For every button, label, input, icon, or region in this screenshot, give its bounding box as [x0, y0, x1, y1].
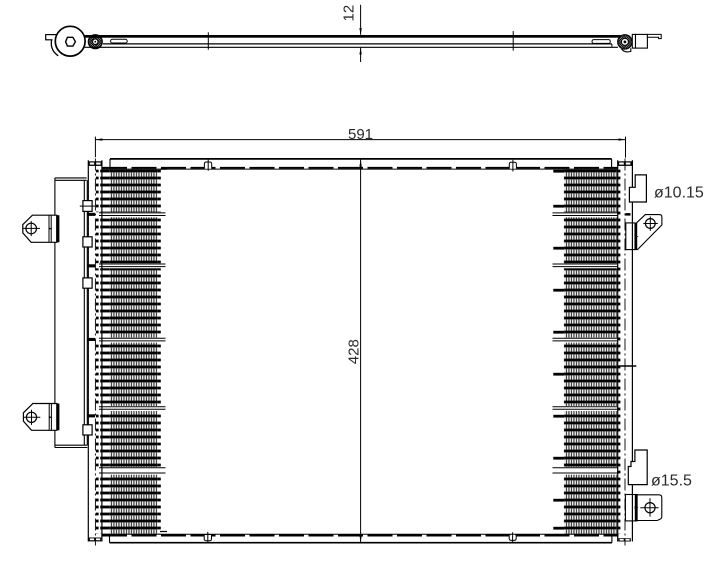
svg-text:ø10.15: ø10.15: [654, 185, 704, 202]
svg-text:ø15.5: ø15.5: [651, 473, 692, 490]
svg-text:428: 428: [345, 339, 362, 364]
svg-text:591: 591: [348, 126, 373, 143]
svg-text:12: 12: [341, 5, 358, 22]
